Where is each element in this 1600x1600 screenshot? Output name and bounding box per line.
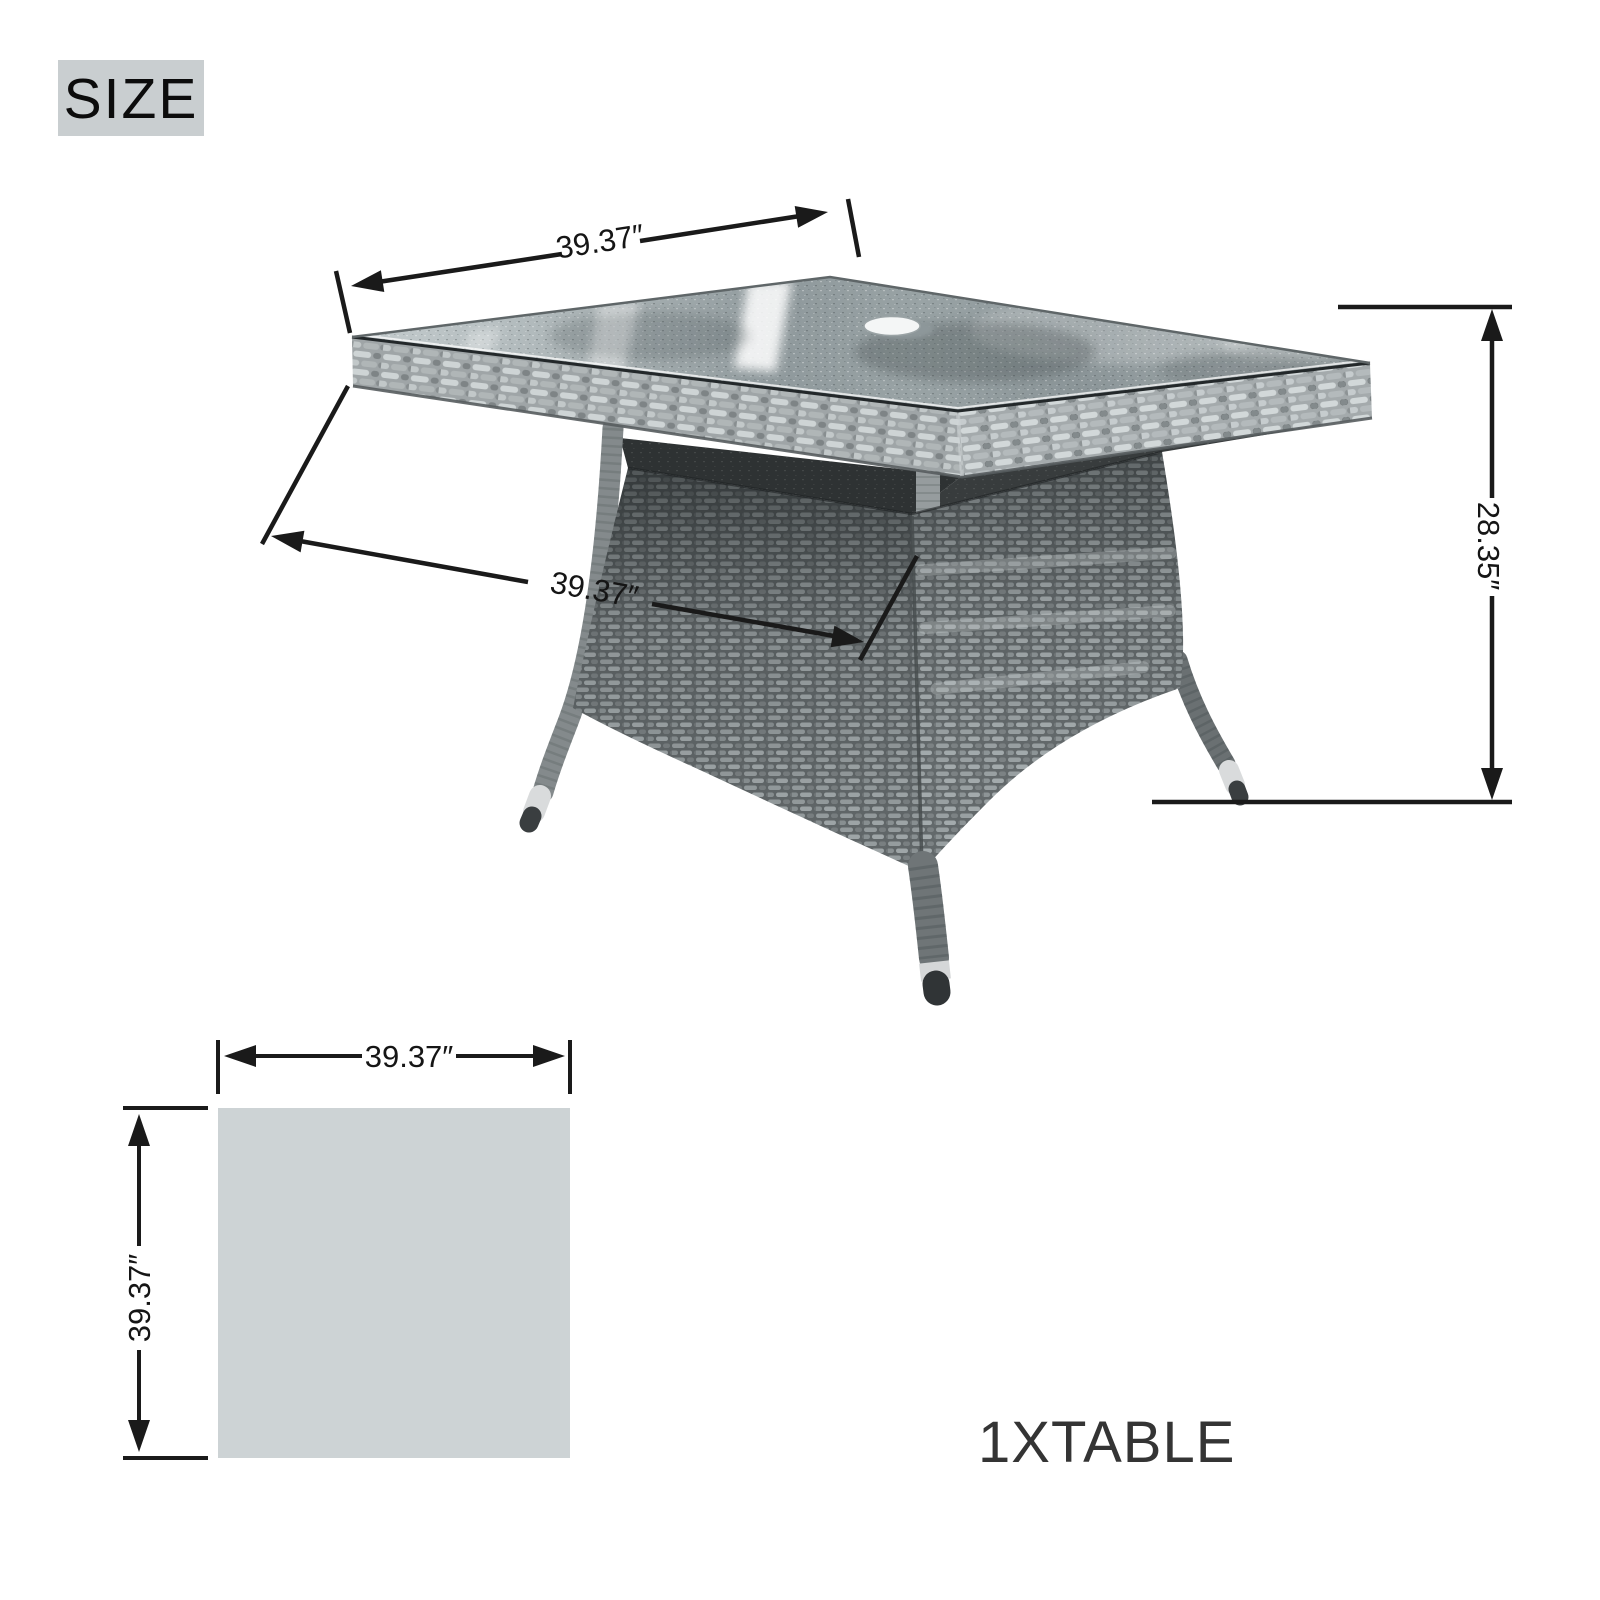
front-leg	[923, 866, 937, 992]
size-badge: SIZE	[58, 60, 204, 136]
plan-view: 39.37″ 39.37″	[122, 1039, 570, 1458]
label-table-width: 39.37″	[553, 217, 646, 265]
label-plan-depth: 39.37″	[122, 1254, 157, 1343]
rear-right-leg	[1178, 660, 1240, 797]
plan-square	[218, 1108, 570, 1458]
size-diagram: 39.37″ 39.37″ 28.35″ 39.37″ 39	[0, 0, 1600, 1600]
size-badge-label: SIZE	[64, 67, 199, 131]
wicker-base	[573, 452, 1183, 872]
label-table-height: 28.35″	[1471, 502, 1506, 591]
size-diagram-page: 39.37″ 39.37″ 28.35″ 39.37″ 39	[0, 0, 1600, 1600]
label-plan-width: 39.37″	[365, 1039, 454, 1074]
table-photo-illustration	[352, 277, 1372, 992]
product-count-note: 1XTABLE	[978, 1410, 1235, 1475]
